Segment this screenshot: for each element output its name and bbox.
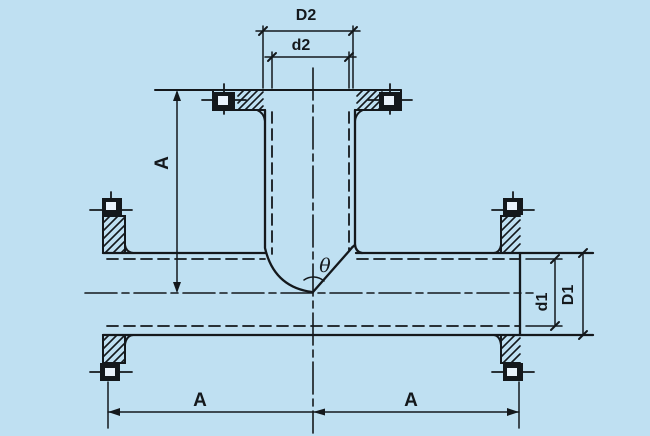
label-branch-outer-diameter-D2: D2: [296, 7, 317, 24]
label-branch-length-A: A: [152, 156, 173, 170]
label-run-inner-diameter-d1: d1: [534, 293, 551, 312]
label-crotch-angle-theta: θ: [319, 255, 331, 277]
label-run-left-length-A: A: [193, 390, 207, 411]
tee-fitting-technical-drawing: D2 d2 A θ d1 D1 A A: [0, 0, 650, 436]
label-branch-inner-diameter-d2: d2: [292, 37, 311, 54]
label-run-right-length-A: A: [404, 390, 418, 411]
drawing-svg: D2 d2 A θ d1 D1 A A: [0, 0, 650, 436]
label-run-outer-diameter-D1: D1: [560, 285, 577, 306]
paper-background: [0, 0, 650, 436]
